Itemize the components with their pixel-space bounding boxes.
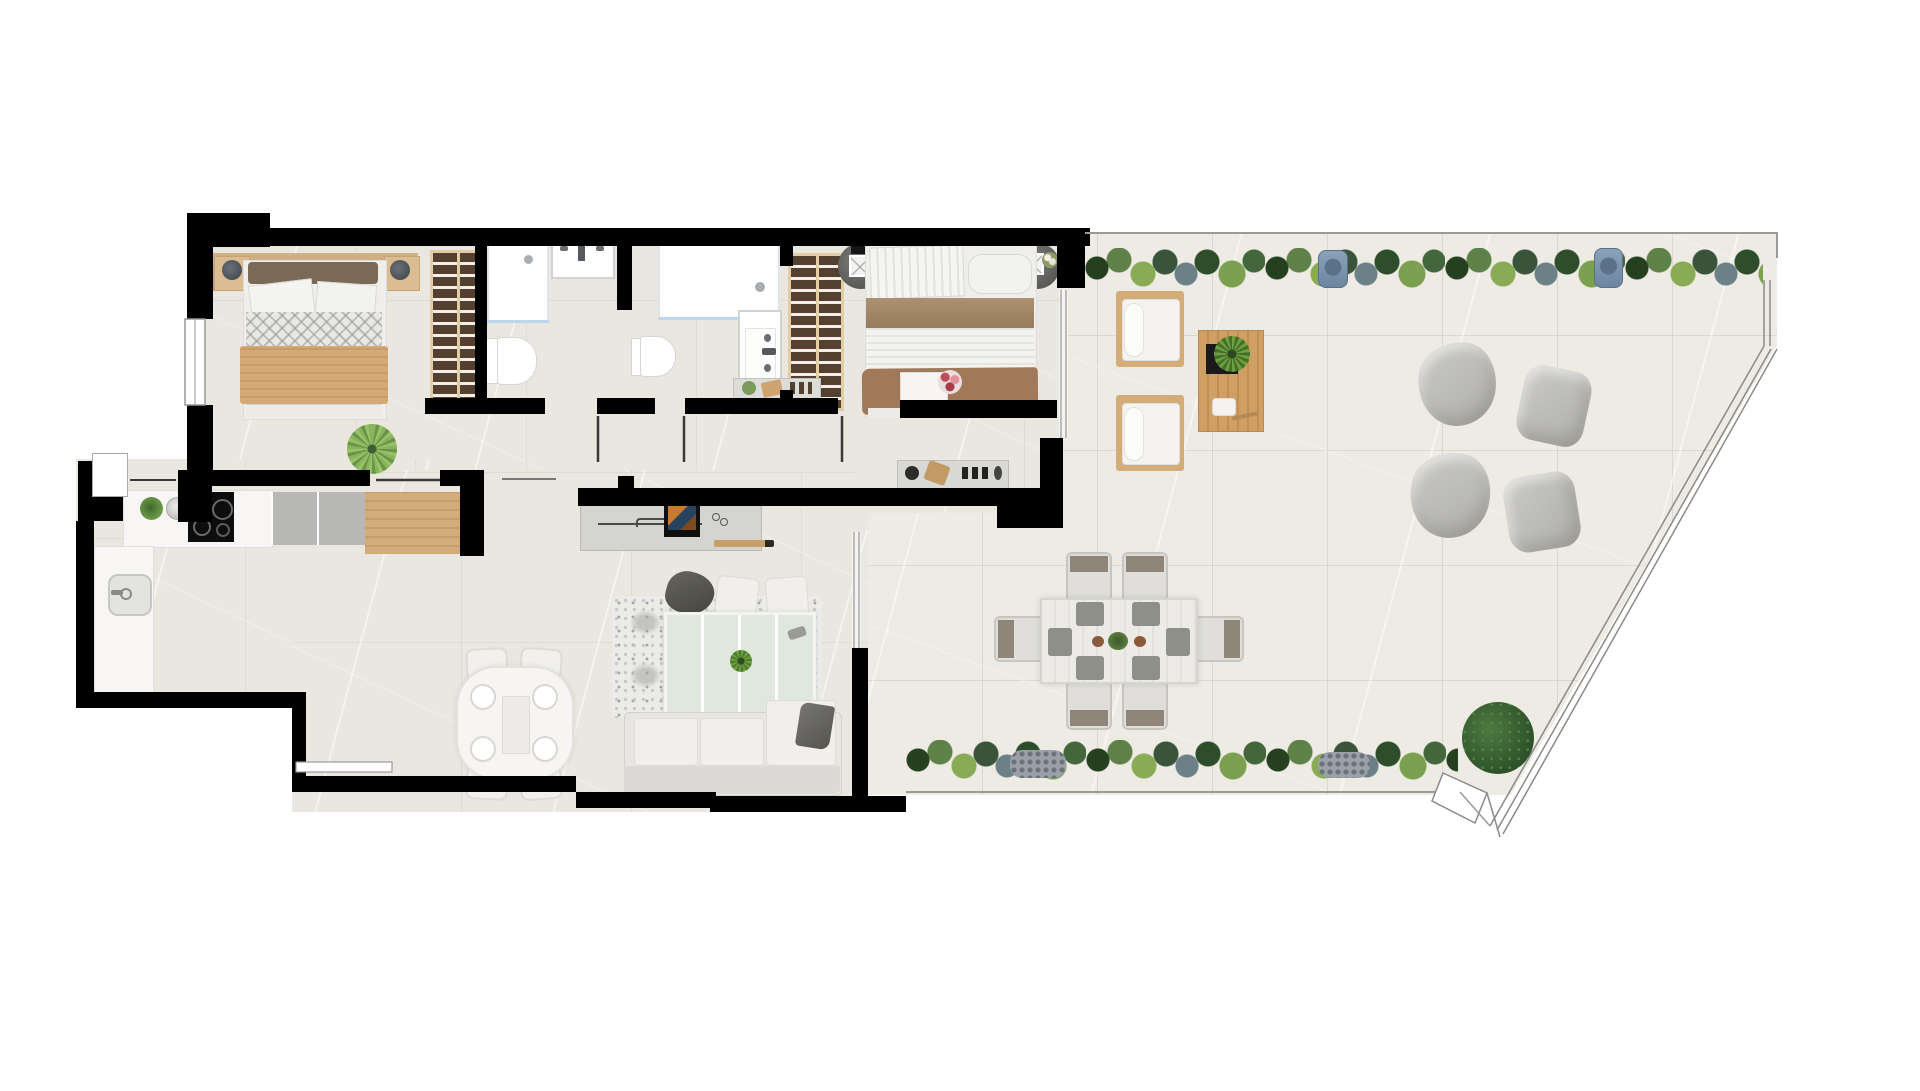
faucet-handle-icon bbox=[764, 364, 771, 372]
sofa-back bbox=[624, 766, 840, 794]
wall bbox=[997, 506, 1063, 528]
bed-1-pillow-back bbox=[248, 262, 378, 284]
outdoor-chair bbox=[1122, 680, 1168, 730]
shower-tray-1 bbox=[487, 243, 549, 323]
lamp-icon bbox=[390, 260, 410, 280]
place-setting bbox=[1132, 602, 1160, 626]
wall bbox=[475, 246, 487, 404]
planter-pot-icon bbox=[1594, 248, 1623, 288]
faucet-handle-icon bbox=[764, 334, 771, 342]
cups-icon bbox=[1212, 398, 1236, 416]
shower-glass-1 bbox=[487, 320, 549, 323]
shower-drain-icon bbox=[755, 282, 765, 292]
outdoor-chair bbox=[1194, 616, 1244, 662]
place-setting bbox=[1076, 602, 1104, 626]
wall bbox=[900, 400, 1057, 418]
plant-icon bbox=[730, 650, 752, 672]
table-runner bbox=[502, 696, 530, 754]
wall bbox=[94, 692, 306, 708]
lamp-icon bbox=[222, 260, 242, 280]
decor-items-icon bbox=[790, 382, 812, 394]
wall bbox=[187, 405, 213, 472]
wall bbox=[1057, 228, 1085, 288]
bed-2-band bbox=[866, 298, 1034, 328]
wall bbox=[852, 648, 868, 798]
bed-1-throw bbox=[240, 346, 388, 404]
outdoor-chair bbox=[994, 616, 1044, 662]
wall bbox=[685, 398, 780, 414]
wall bbox=[425, 398, 545, 414]
outdoor-chair bbox=[1066, 680, 1112, 730]
round-bush bbox=[1462, 702, 1534, 774]
decor-plant-icon bbox=[742, 381, 756, 395]
beanbag bbox=[1500, 469, 1583, 555]
vanity-basin bbox=[745, 328, 776, 382]
remote-icon bbox=[712, 513, 720, 521]
wall bbox=[187, 213, 213, 319]
outdoor-chair bbox=[1066, 552, 1112, 602]
plant-icon bbox=[347, 424, 397, 474]
wall bbox=[618, 476, 634, 490]
floor-plan-canvas bbox=[0, 0, 1920, 1091]
candles-icon bbox=[962, 467, 990, 479]
centerpiece-icon bbox=[1134, 636, 1146, 647]
place-setting bbox=[532, 684, 558, 710]
pebble-patch bbox=[1318, 752, 1370, 778]
hedge-top bbox=[1085, 248, 1763, 290]
burner-icon bbox=[216, 523, 230, 537]
sofa-cushion bbox=[634, 718, 698, 766]
place-setting bbox=[470, 684, 496, 710]
faucet-handle-icon bbox=[596, 246, 604, 251]
flowers-icon bbox=[1042, 252, 1058, 268]
wall bbox=[788, 398, 838, 414]
shower-tray-2 bbox=[658, 241, 780, 319]
pebble-patch bbox=[1010, 750, 1066, 778]
bottle-icon bbox=[994, 466, 1002, 480]
place-setting bbox=[1076, 656, 1104, 680]
throw-blanket bbox=[795, 702, 835, 751]
wall bbox=[304, 776, 576, 792]
wall bbox=[212, 470, 370, 486]
burner-icon bbox=[212, 499, 233, 520]
planter-pot-icon bbox=[1318, 250, 1348, 288]
soundbar-icon bbox=[714, 540, 774, 547]
plant-icon bbox=[1214, 336, 1250, 372]
place-setting bbox=[532, 736, 558, 762]
plant-icon bbox=[140, 497, 163, 520]
toilet-1-bowl bbox=[497, 337, 537, 385]
wall bbox=[187, 228, 1090, 246]
appliance-column bbox=[271, 492, 367, 545]
wall bbox=[780, 240, 793, 266]
bowl-icon bbox=[905, 466, 919, 480]
centerpiece-icon bbox=[1092, 636, 1104, 647]
bed-2-pillow bbox=[869, 244, 965, 299]
flowers-icon bbox=[938, 370, 962, 394]
wall bbox=[578, 488, 1040, 506]
remote-icon bbox=[720, 518, 728, 526]
tv-screen bbox=[668, 504, 696, 530]
bed-2-duvet bbox=[866, 328, 1034, 370]
place-setting bbox=[470, 736, 496, 762]
faucet-icon bbox=[120, 588, 132, 600]
wall bbox=[460, 470, 484, 556]
faucet-icon bbox=[762, 348, 776, 355]
place-setting bbox=[1048, 628, 1072, 656]
outdoor-chair bbox=[1122, 552, 1168, 602]
lounge-pillow bbox=[1124, 407, 1144, 461]
place-setting bbox=[1166, 628, 1190, 656]
wall bbox=[617, 230, 632, 310]
wood-counter bbox=[365, 492, 465, 554]
sofa-cushion bbox=[700, 718, 764, 766]
shower-drain-icon bbox=[524, 255, 533, 264]
wall bbox=[597, 398, 655, 414]
wall bbox=[1040, 438, 1063, 514]
entry-door bbox=[92, 453, 128, 497]
centerpiece-icon bbox=[1108, 632, 1128, 650]
wall bbox=[710, 796, 906, 812]
wall bbox=[76, 521, 94, 708]
hedge-bottom bbox=[906, 740, 1458, 790]
bed-2-bolster bbox=[968, 254, 1032, 294]
kitchen-counter-left bbox=[94, 546, 154, 698]
place-setting bbox=[1132, 656, 1160, 680]
lounge-pillow bbox=[1124, 303, 1144, 357]
bed-1-foot bbox=[246, 404, 382, 418]
wall bbox=[576, 792, 716, 808]
faucet-handle-icon bbox=[560, 246, 568, 251]
wall bbox=[178, 470, 212, 522]
